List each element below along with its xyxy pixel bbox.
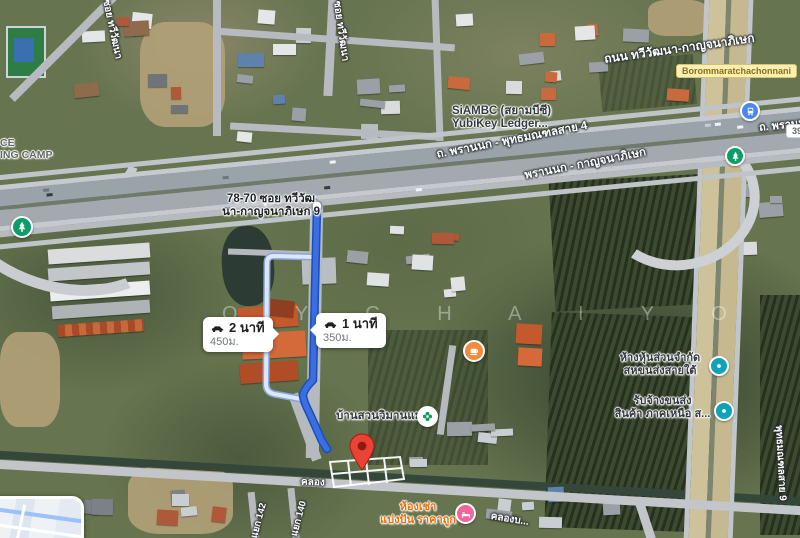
building-roof bbox=[505, 81, 521, 95]
training-camp-line1: CE bbox=[0, 137, 53, 149]
building-roof bbox=[522, 501, 535, 510]
building-roof bbox=[447, 422, 472, 437]
alt-route-duration: 2 นาที bbox=[229, 321, 265, 335]
hang-hun-line2: สหขนส่งสายใต้ bbox=[610, 365, 710, 378]
place-label-siambc-line2: YubiKey Ledger... bbox=[452, 118, 551, 131]
building-roof bbox=[447, 76, 470, 90]
building-roof bbox=[82, 30, 105, 42]
route-time-bubble-primary[interactable]: 1 นาที 350ม. bbox=[316, 313, 386, 348]
garden-flower-icon[interactable] bbox=[417, 406, 438, 427]
route-time-bubble-alternate[interactable]: 2 นาที 450ม. bbox=[203, 317, 273, 352]
building-roof bbox=[667, 88, 690, 101]
building-roof bbox=[497, 498, 511, 511]
building-roof bbox=[236, 74, 253, 84]
building-roof bbox=[172, 494, 189, 506]
vehicle bbox=[43, 188, 49, 192]
origin-address-line2: นา-กาญจนาภิเษก 9 bbox=[222, 206, 320, 219]
building-roof bbox=[272, 95, 284, 105]
road-soi bbox=[431, 0, 443, 141]
place-label-siambc-line1: SiAMBC (สยามบีซี) bbox=[452, 105, 551, 118]
cafe-icon[interactable] bbox=[463, 340, 485, 362]
building-roof bbox=[456, 14, 473, 27]
building-roof bbox=[450, 276, 465, 291]
vehicle bbox=[324, 186, 330, 190]
primary-route-distance: 350ม. bbox=[323, 332, 378, 344]
map-watermark: O Y C H A I Y O bbox=[222, 303, 753, 326]
park-tree-icon[interactable] bbox=[725, 146, 745, 166]
road-shield-borommaratchachonnani: Borommaratchachonnani bbox=[676, 64, 797, 78]
building-roof bbox=[432, 232, 454, 244]
car-icon bbox=[323, 319, 338, 330]
inset-road bbox=[0, 521, 84, 538]
building-roof bbox=[519, 52, 545, 66]
building-roof bbox=[770, 196, 782, 204]
building-roof bbox=[273, 44, 296, 55]
building-roof bbox=[257, 9, 275, 24]
building-roof bbox=[360, 98, 385, 108]
building-roof bbox=[623, 28, 649, 43]
dirt-patch bbox=[648, 0, 708, 36]
vehicle bbox=[715, 122, 721, 126]
place-label-hang-hun[interactable]: ห้างหุ้นส่วนจำกัด สหขนส่งสายใต้ bbox=[610, 352, 710, 377]
building-roof bbox=[540, 33, 555, 46]
place-label-hong-chao[interactable]: ห้องเช่า แบ่งปัน ราคาถูก bbox=[378, 501, 458, 526]
building-roof bbox=[367, 272, 390, 287]
building-roof bbox=[157, 510, 179, 526]
road-soi bbox=[213, 0, 221, 136]
building-roof bbox=[171, 87, 182, 99]
vehicle bbox=[222, 176, 228, 180]
place-label-rap-jang[interactable]: รับจ้างขนส่ง สินค้า ภาคเหนือ ส... bbox=[610, 395, 715, 420]
building-roof bbox=[347, 250, 369, 265]
road-label-khlong: คลอง bbox=[301, 475, 325, 491]
building-roof bbox=[212, 506, 228, 523]
origin-address-label[interactable]: 78-70 ซอย ทวีวัฒ นา-กาญจนาภิเษก 9 bbox=[222, 193, 320, 219]
building-roof bbox=[237, 131, 253, 142]
vehicle bbox=[704, 123, 710, 127]
bus-station-icon[interactable] bbox=[740, 101, 760, 121]
place-label-training-camp[interactable]: CE ING CAMP bbox=[0, 137, 53, 161]
rap-jang-line2: สินค้า ภาคเหนือ ส... bbox=[610, 408, 715, 421]
building-roof bbox=[148, 73, 168, 87]
hong-chao-line2: แบ่งปัน ราคาถูก bbox=[378, 514, 458, 527]
lodging-bed-icon[interactable] bbox=[455, 503, 476, 524]
building-roof bbox=[758, 201, 783, 218]
building-roof bbox=[410, 459, 427, 467]
hang-hun-line1: ห้างหุ้นส่วนจำกัด bbox=[610, 352, 710, 365]
building-roof bbox=[515, 323, 542, 344]
satellite-map[interactable]: O Y C H A I Y O ถนน ทวีวัฒนา-กาญจนาภิเษก… bbox=[0, 0, 800, 538]
vehicle bbox=[330, 160, 336, 164]
park-tree-icon[interactable] bbox=[11, 216, 33, 238]
inset-road bbox=[0, 505, 84, 524]
building-roof bbox=[541, 88, 556, 100]
road-shield-390: 390 bbox=[786, 124, 800, 138]
map-type-toggle[interactable] bbox=[0, 496, 84, 538]
building-roof bbox=[357, 78, 381, 95]
hong-chao-line1: ห้องเช่า bbox=[378, 501, 458, 514]
origin-address-line1: 78-70 ซอย ทวีวัฒ bbox=[222, 193, 320, 206]
building-roof bbox=[539, 517, 563, 528]
building-roof bbox=[575, 25, 596, 40]
highway-vertical bbox=[683, 0, 764, 538]
building-roof bbox=[291, 107, 306, 121]
generic-place-icon[interactable] bbox=[714, 401, 734, 421]
rap-jang-line1: รับจ้างขนส่ง bbox=[610, 395, 715, 408]
vehicle bbox=[46, 193, 52, 197]
road-label-khlong-right: คลองบ... bbox=[490, 509, 530, 530]
alt-route-distance: 450ม. bbox=[210, 336, 265, 348]
primary-route-duration: 1 นาที bbox=[342, 317, 378, 331]
building-roof bbox=[389, 85, 406, 93]
vehicle bbox=[416, 188, 422, 192]
car-icon bbox=[210, 323, 225, 334]
building-roof bbox=[389, 225, 403, 234]
building-roof bbox=[412, 254, 434, 271]
building-roof bbox=[545, 72, 557, 83]
sports-court-inner bbox=[14, 38, 34, 62]
training-camp-line2: ING CAMP bbox=[0, 149, 53, 161]
building-roof bbox=[171, 105, 188, 113]
building-roof bbox=[238, 53, 264, 67]
place-label-siambc[interactable]: SiAMBC (สยามบีซี) YubiKey Ledger... bbox=[452, 105, 551, 131]
building-roof bbox=[518, 347, 543, 366]
vehicle bbox=[737, 125, 743, 129]
generic-place-icon[interactable] bbox=[709, 356, 729, 376]
building-roof bbox=[92, 499, 113, 515]
